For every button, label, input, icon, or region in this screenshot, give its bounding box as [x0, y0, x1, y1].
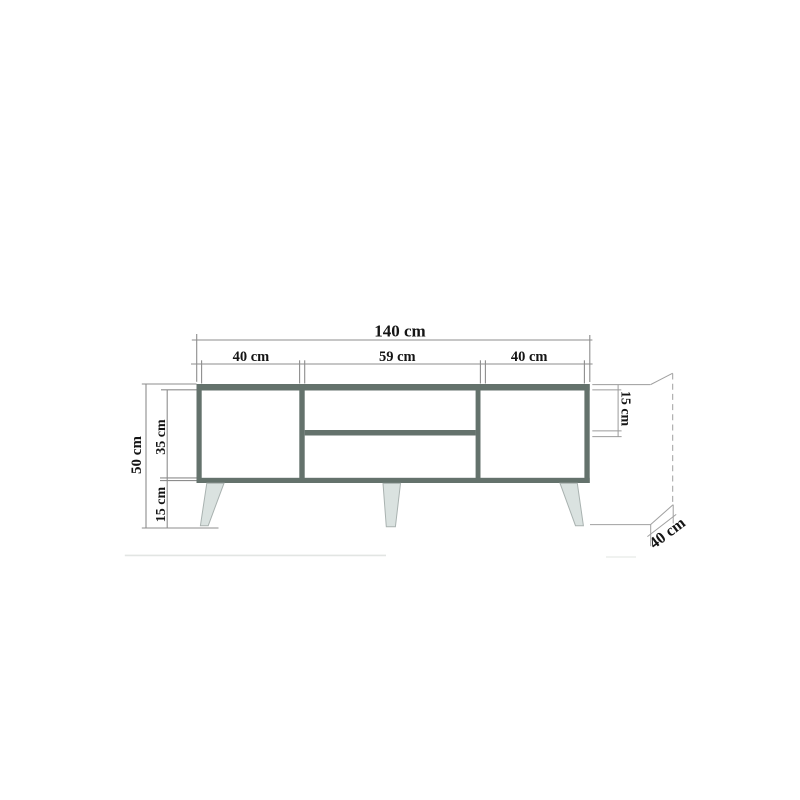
svg-text:59 cm: 59 cm	[379, 349, 416, 365]
svg-text:40 cm: 40 cm	[511, 349, 548, 365]
svg-text:15 cm: 15 cm	[154, 486, 169, 522]
svg-text:15 cm: 15 cm	[617, 391, 632, 427]
svg-text:35 cm: 35 cm	[154, 419, 169, 455]
svg-text:50 cm: 50 cm	[129, 436, 145, 474]
svg-text:140 cm: 140 cm	[374, 322, 425, 341]
svg-text:40 cm: 40 cm	[233, 349, 270, 365]
